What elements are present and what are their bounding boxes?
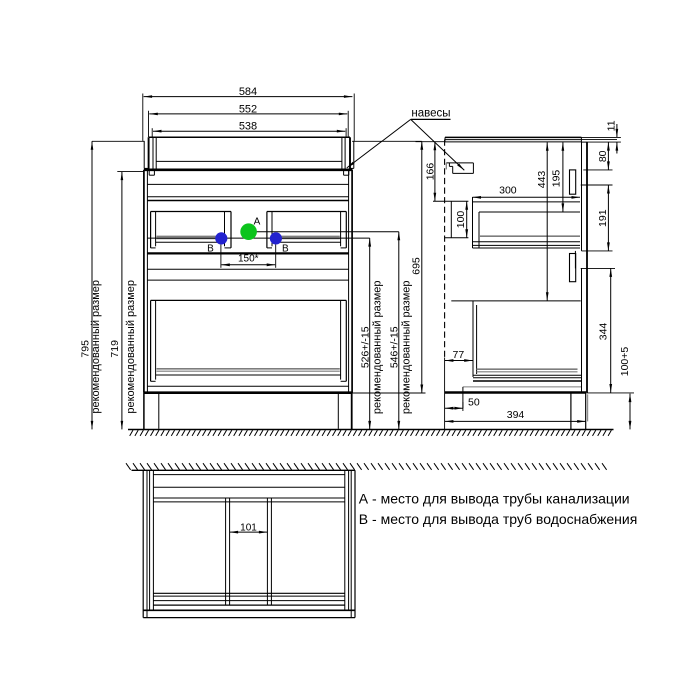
- svg-text:552: 552: [239, 103, 257, 115]
- svg-text:рекомендованный размер: рекомендованный размер: [371, 280, 383, 414]
- svg-text:80: 80: [597, 150, 609, 162]
- svg-text:166: 166: [425, 163, 437, 181]
- svg-text:100+5: 100+5: [619, 347, 631, 377]
- svg-text:443: 443: [536, 171, 548, 189]
- svg-text:538: 538: [239, 121, 257, 133]
- svg-text:195: 195: [551, 170, 563, 188]
- svg-text:50: 50: [468, 397, 480, 409]
- svg-text:В - место для вывода труб водо: В - место для вывода труб водоснабжения: [359, 511, 638, 527]
- svg-text:719: 719: [109, 340, 121, 358]
- svg-text:рекомендованный размер: рекомендованный размер: [125, 280, 137, 414]
- svg-text:344: 344: [598, 323, 610, 341]
- svg-text:101: 101: [240, 522, 257, 533]
- svg-text:навесы: навесы: [411, 108, 450, 120]
- svg-text:394: 394: [507, 409, 525, 421]
- svg-text:рекомендованный размер: рекомендованный размер: [400, 280, 412, 414]
- svg-text:A: A: [254, 217, 261, 228]
- svg-text:рекомендованный размер: рекомендованный размер: [90, 280, 102, 414]
- svg-text:77: 77: [453, 349, 465, 361]
- svg-text:191: 191: [597, 209, 609, 227]
- svg-text:695: 695: [411, 257, 423, 275]
- svg-text:584: 584: [239, 86, 257, 98]
- svg-text:300: 300: [499, 184, 517, 196]
- svg-text:100: 100: [455, 211, 467, 229]
- svg-text:526+/-15: 526+/-15: [359, 326, 371, 368]
- svg-text:А - место для вывода трубы кан: А - место для вывода трубы канализации: [359, 491, 630, 507]
- svg-text:11: 11: [606, 120, 618, 131]
- svg-text:546+/-15: 546+/-15: [389, 326, 401, 368]
- svg-text:150*: 150*: [238, 254, 259, 265]
